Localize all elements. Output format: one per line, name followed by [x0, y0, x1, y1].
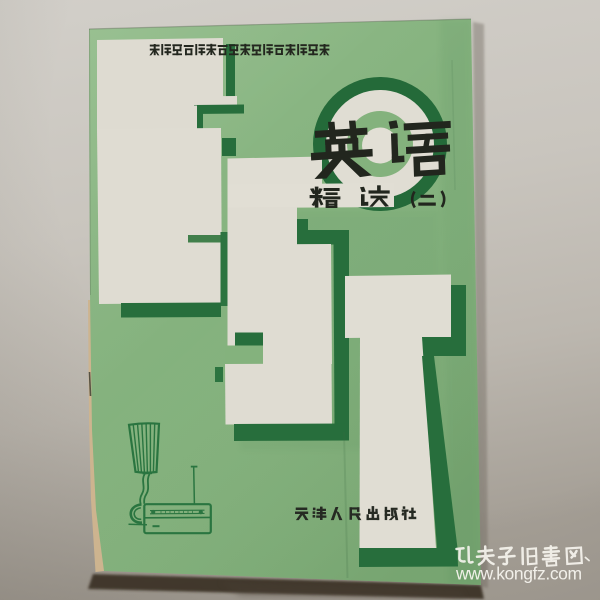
svg-text:www.kongfz.com: www.kongfz.com [455, 564, 582, 584]
